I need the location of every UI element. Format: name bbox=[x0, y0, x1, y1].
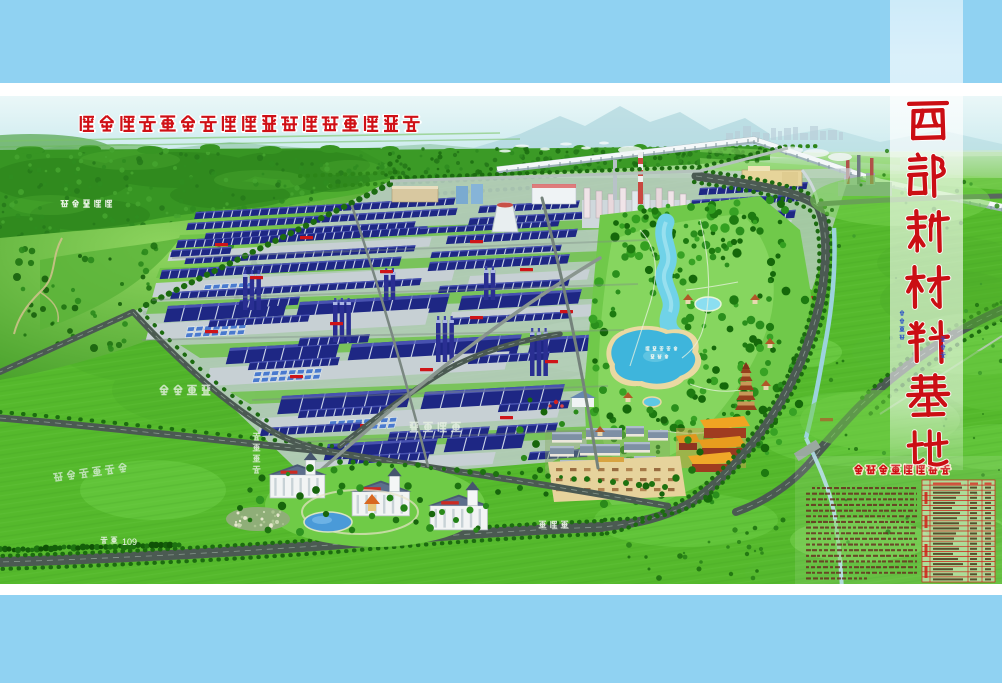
svg-text:109: 109 bbox=[122, 537, 137, 547]
